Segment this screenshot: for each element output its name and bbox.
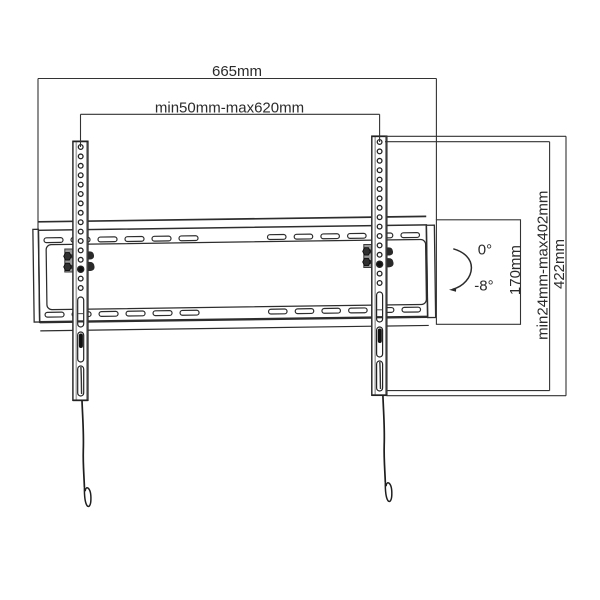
svg-text:-8°: -8° — [474, 277, 493, 294]
svg-text:0°: 0° — [478, 242, 492, 259]
svg-text:min50mm-max620mm: min50mm-max620mm — [155, 100, 304, 117]
svg-text:665mm: 665mm — [212, 63, 262, 80]
svg-text:422mm: 422mm — [551, 239, 568, 289]
svg-text:170mm: 170mm — [507, 245, 524, 295]
svg-text:min24mm-max402mm: min24mm-max402mm — [534, 191, 551, 340]
